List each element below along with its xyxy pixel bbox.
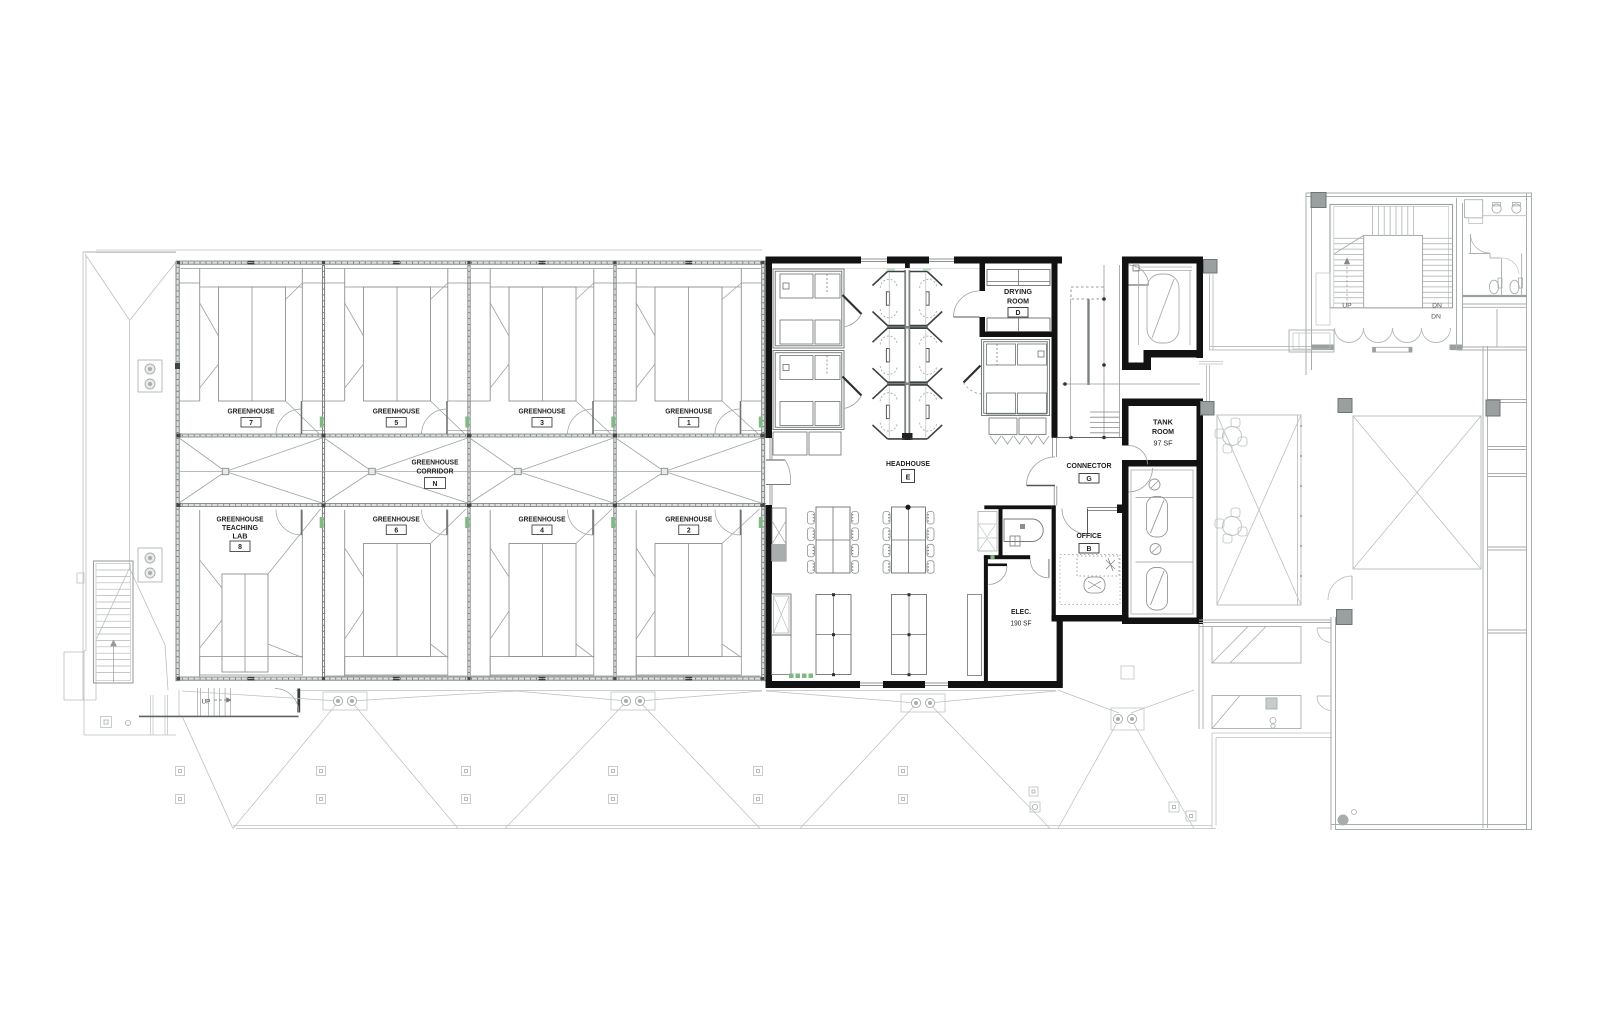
svg-text:GREENHOUSE: GREENHOUSE — [373, 515, 420, 524]
svg-text:6: 6 — [394, 527, 398, 534]
svg-text:OFFICE: OFFICE — [1077, 531, 1102, 540]
svg-text:LAB: LAB — [233, 532, 248, 541]
svg-text:ELEC.: ELEC. — [1011, 607, 1031, 616]
svg-text:ROOM: ROOM — [1007, 297, 1029, 306]
svg-text:3: 3 — [540, 420, 544, 427]
svg-text:HEADHOUSE: HEADHOUSE — [886, 459, 930, 468]
svg-text:CORRIDOR: CORRIDOR — [417, 467, 455, 476]
svg-text:GREENHOUSE: GREENHOUSE — [373, 407, 420, 416]
svg-text:5: 5 — [394, 420, 398, 427]
svg-text:GREENHOUSE: GREENHOUSE — [665, 515, 712, 524]
svg-text:TANK: TANK — [1153, 418, 1174, 427]
svg-text:CONNECTOR: CONNECTOR — [1067, 461, 1113, 470]
svg-text:GREENHOUSE: GREENHOUSE — [665, 407, 712, 416]
svg-text:7: 7 — [249, 420, 253, 427]
svg-text:DN: DN — [1432, 303, 1442, 310]
svg-text:97 SF: 97 SF — [1154, 439, 1173, 448]
svg-text:GREENHOUSE: GREENHOUSE — [519, 515, 566, 524]
svg-text:GREENHOUSE: GREENHOUSE — [412, 458, 459, 467]
svg-text:DRYING: DRYING — [1004, 287, 1032, 296]
svg-text:DN: DN — [1431, 314, 1441, 321]
svg-text:E: E — [906, 472, 911, 481]
svg-text:GREENHOUSE: GREENHOUSE — [228, 407, 275, 416]
svg-text:2: 2 — [687, 527, 691, 534]
svg-text:4: 4 — [540, 527, 544, 534]
svg-text:8: 8 — [238, 544, 242, 551]
svg-text:ROOM: ROOM — [1152, 427, 1174, 436]
svg-text:B: B — [1087, 546, 1092, 553]
svg-text:GREENHOUSE: GREENHOUSE — [519, 407, 566, 416]
svg-text:D: D — [1016, 310, 1021, 317]
svg-text:G: G — [1086, 476, 1091, 483]
svg-text:UP: UP — [201, 699, 210, 706]
svg-text:N: N — [433, 481, 438, 488]
svg-text:1: 1 — [687, 420, 691, 427]
svg-text:UP: UP — [1342, 303, 1352, 310]
svg-text:190 SF: 190 SF — [1011, 619, 1032, 628]
